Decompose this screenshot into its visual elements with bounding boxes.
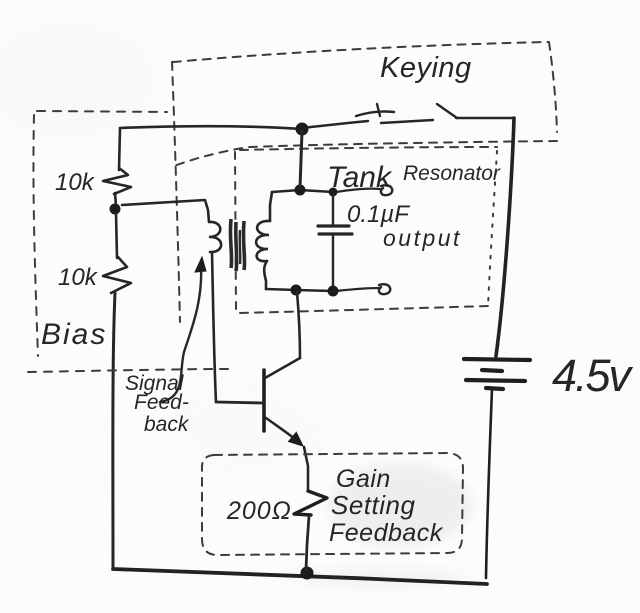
svg-text:0.1µF: 0.1µF [347,201,410,228]
svg-text:Gain: Gain [336,465,391,493]
svg-text:Keying: Keying [380,52,472,84]
svg-text:output: output [383,225,462,251]
svg-text:200Ω: 200Ω [226,497,292,525]
svg-text:back: back [144,413,190,436]
svg-text:Feedback: Feedback [329,519,444,547]
svg-text:10k: 10k [58,264,99,291]
svg-text:Resonator: Resonator [403,162,501,185]
svg-text:Feed-: Feed- [134,391,189,414]
svg-text:10k: 10k [55,169,96,196]
svg-text:Setting: Setting [331,490,415,520]
svg-text:4.5v: 4.5v [552,350,634,401]
svg-text:Bias: Bias [41,318,107,351]
